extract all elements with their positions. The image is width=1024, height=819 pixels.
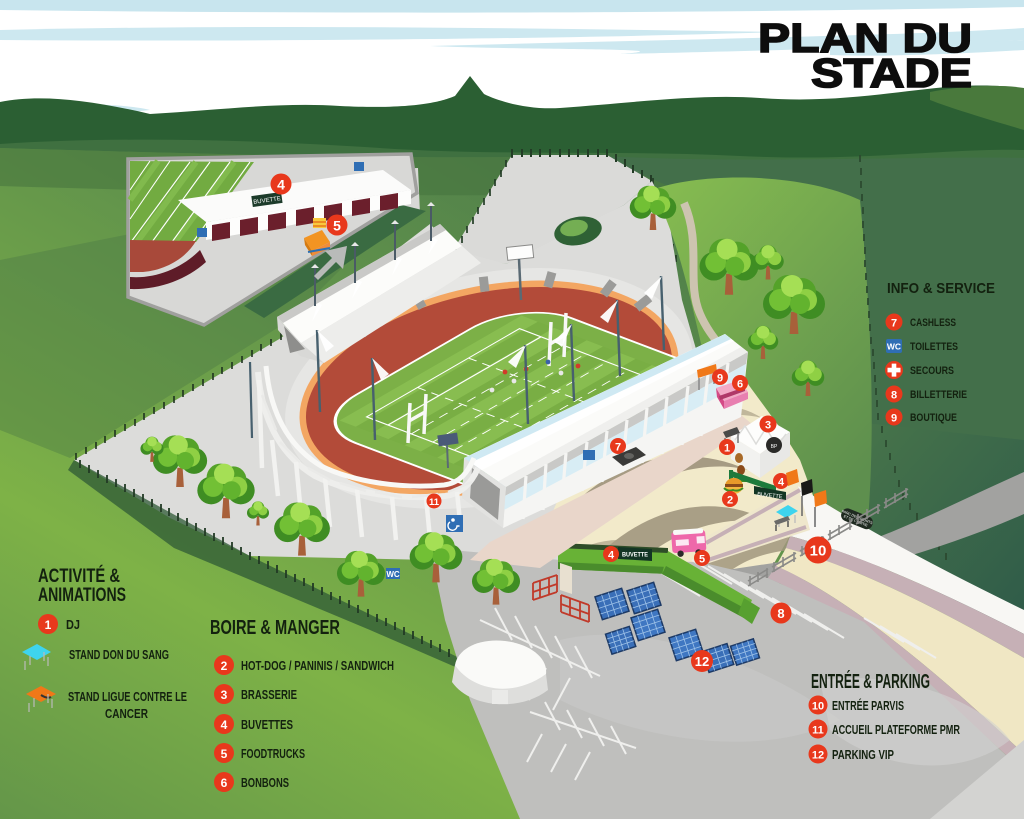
svg-text:ENTRÉE PARVIS: ENTRÉE PARVIS [832, 698, 904, 713]
svg-text:INFO & SERVICE: INFO & SERVICE [887, 280, 995, 297]
svg-text:FOODTRUCKS: FOODTRUCKS [241, 746, 305, 761]
svg-text:BUVETTES: BUVETTES [241, 717, 293, 732]
svg-text:BP: BP [771, 444, 778, 450]
svg-text:WC: WC [887, 342, 901, 352]
svg-text:11: 11 [812, 725, 824, 737]
svg-text:STAND LIGUE CONTRE LE: STAND LIGUE CONTRE LE [68, 689, 187, 704]
svg-text:11: 11 [429, 497, 440, 508]
svg-text:6: 6 [737, 379, 743, 391]
svg-text:CANCER: CANCER [105, 706, 148, 721]
svg-text:2: 2 [221, 659, 228, 673]
svg-text:10: 10 [810, 543, 827, 560]
svg-text:1: 1 [724, 443, 730, 455]
svg-text:ACTIVITÉ &: ACTIVITÉ & [38, 565, 120, 587]
svg-text:BILLETTERIE: BILLETTERIE [910, 389, 967, 401]
svg-text:BONBONS: BONBONS [241, 775, 289, 790]
svg-text:BOUTIQUE: BOUTIQUE [910, 412, 957, 424]
svg-text:12: 12 [695, 654, 709, 669]
svg-text:3: 3 [221, 688, 228, 702]
svg-text:12: 12 [812, 750, 824, 762]
svg-text:9: 9 [891, 413, 897, 425]
svg-text:ENTRÉE & PARKING: ENTRÉE & PARKING [811, 670, 930, 693]
svg-text:10: 10 [812, 701, 824, 713]
svg-text:ACCUEIL PLATEFORME PMR: ACCUEIL PLATEFORME PMR [832, 722, 960, 737]
svg-text:STAND DON DU SANG: STAND DON DU SANG [69, 647, 169, 662]
svg-text:2: 2 [727, 495, 733, 507]
svg-text:STADE: STADE [811, 50, 972, 96]
svg-text:8: 8 [891, 390, 897, 402]
svg-text:7: 7 [615, 442, 621, 454]
svg-text:BUVETTE: BUVETTE [622, 553, 648, 559]
svg-text:BRASSERIE: BRASSERIE [241, 687, 297, 702]
svg-text:5: 5 [699, 554, 705, 566]
svg-text:6: 6 [221, 776, 228, 790]
svg-text:4: 4 [778, 477, 785, 489]
svg-text:4: 4 [221, 718, 228, 732]
svg-text:WC: WC [386, 570, 400, 579]
svg-text:CASHLESS: CASHLESS [910, 317, 956, 329]
svg-text:9: 9 [717, 373, 723, 385]
svg-text:BOIRE & MANGER: BOIRE & MANGER [210, 617, 340, 639]
svg-text:HOT-DOG / PANINIS / SANDWICH: HOT-DOG / PANINIS / SANDWICH [241, 658, 394, 673]
svg-text:4: 4 [608, 550, 615, 562]
svg-text:SECOURS: SECOURS [910, 365, 954, 377]
svg-text:ANIMATIONS: ANIMATIONS [38, 585, 126, 606]
svg-text:TOILETTES: TOILETTES [910, 341, 958, 353]
svg-text:7: 7 [891, 318, 897, 330]
svg-text:5: 5 [333, 218, 341, 234]
svg-text:3: 3 [765, 420, 771, 432]
svg-text:8: 8 [777, 606, 784, 621]
svg-text:5: 5 [221, 747, 228, 761]
svg-text:PARKING VIP: PARKING VIP [832, 747, 894, 762]
svg-text:4: 4 [277, 177, 285, 193]
svg-text:DJ: DJ [66, 617, 80, 632]
svg-text:1: 1 [45, 618, 52, 632]
